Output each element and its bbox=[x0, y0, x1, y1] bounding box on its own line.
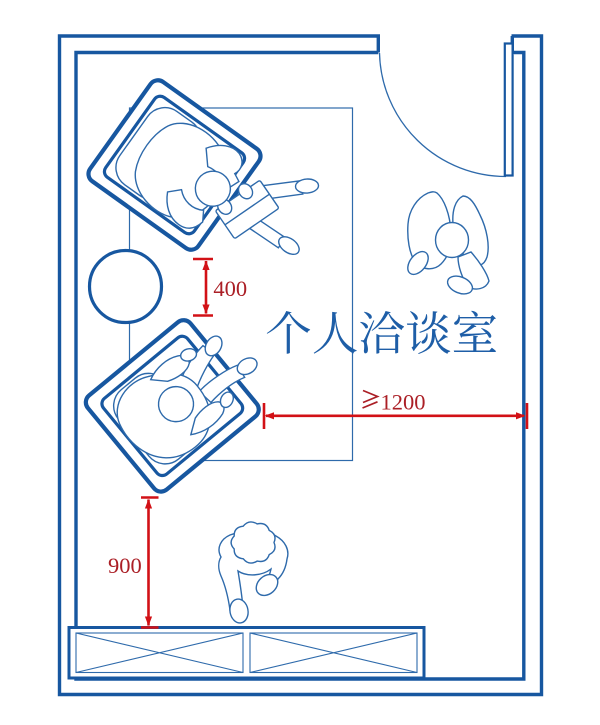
svg-text:400: 400 bbox=[213, 276, 247, 301]
svg-text:1200: 1200 bbox=[381, 390, 426, 415]
svg-text:900: 900 bbox=[108, 553, 142, 578]
